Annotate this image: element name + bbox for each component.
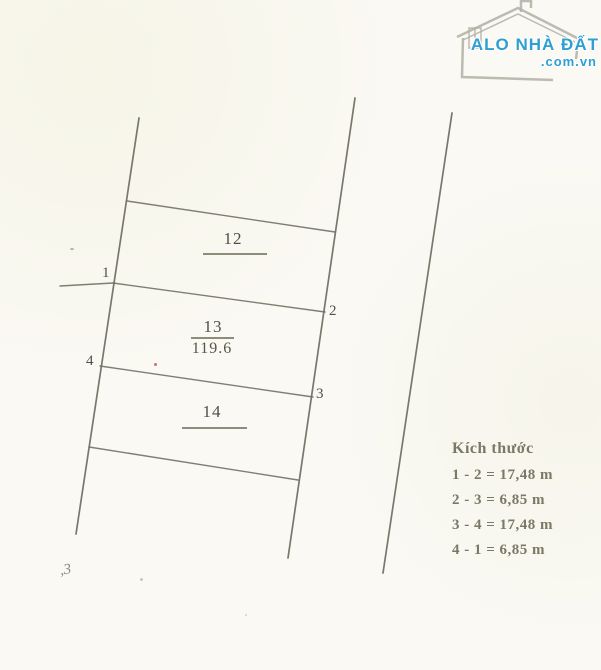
- legend-entry-4-1: 4 - 1 = 6,85 m: [452, 538, 601, 563]
- red-speck: [154, 363, 157, 366]
- logo-title: ALO NHÀ ĐẤT: [419, 35, 599, 55]
- plot-12-underline: [203, 253, 267, 255]
- corner-point-1: 1: [102, 265, 110, 282]
- gray-speck: [245, 614, 247, 616]
- gray-speck: [70, 248, 74, 250]
- scanned-land-plot-sketch: ALO NHÀ ĐẤT .com.vn 12 13 119.6 14 1 2 3…: [0, 0, 601, 670]
- left-boundary-line: [76, 118, 139, 534]
- divider-bottom-of-plot14: [89, 447, 298, 480]
- legend-title: Kích thước: [452, 440, 601, 458]
- handwritten-scribble: ,3: [59, 561, 73, 579]
- plot-diagram: [0, 0, 601, 670]
- plot-14-label: 14: [189, 402, 235, 422]
- plot-13-area: 119.6: [183, 340, 241, 358]
- outer-road-line: [383, 113, 452, 573]
- corner-point-4: 4: [86, 353, 94, 370]
- legend-entry-1-2: 1 - 2 = 17,48 m: [452, 463, 601, 488]
- dimensions-legend: Kích thước 1 - 2 = 17,48 m 2 - 3 = 6,85 …: [452, 440, 601, 563]
- corner-point-3: 3: [316, 386, 324, 403]
- right-boundary-line: [288, 98, 355, 558]
- site-logo: ALO NHÀ ĐẤT .com.vn: [419, 35, 599, 69]
- logo-subtitle: .com.vn: [419, 54, 599, 69]
- legend-entry-2-3: 2 - 3 = 6,85 m: [452, 488, 601, 513]
- legend-entry-3-4: 3 - 4 = 17,48 m: [452, 513, 601, 538]
- plot-13-fraction-bar: [191, 337, 234, 339]
- divider-top-of-plot12: [127, 201, 335, 232]
- corner-point-2: 2: [329, 303, 337, 320]
- plot-14-underline: [182, 427, 247, 429]
- plot-13-label: 13: [192, 317, 234, 337]
- gray-speck: [140, 578, 143, 581]
- divider-1-2: [60, 283, 325, 312]
- plot-12-label: 12: [210, 229, 256, 249]
- divider-4-3: [100, 366, 313, 397]
